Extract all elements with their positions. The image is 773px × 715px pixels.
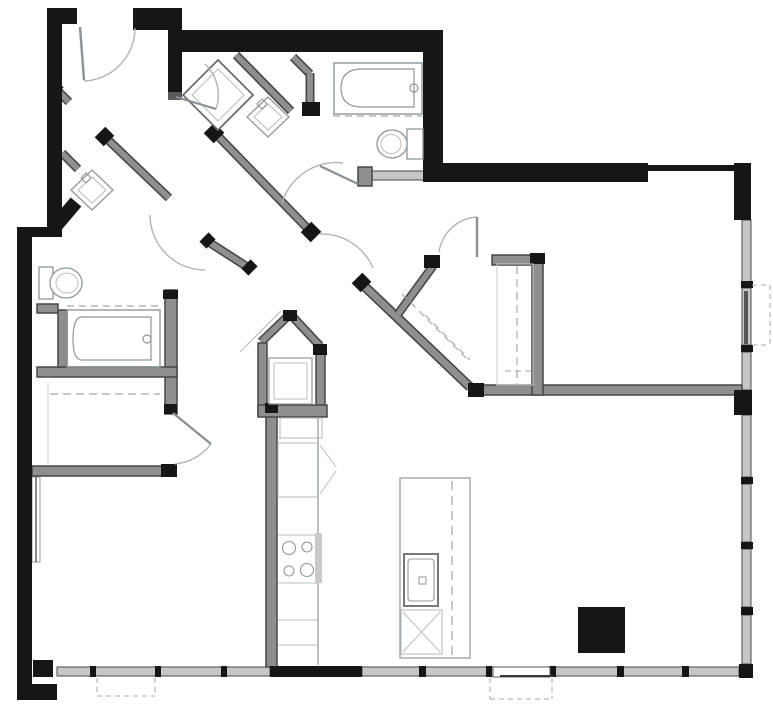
wall-cap-pantry-peak: [283, 310, 297, 321]
mullion-bottom-3: [221, 666, 227, 677]
island-sink-drain: [419, 577, 426, 584]
wall-band-bottom-left: [57, 667, 270, 676]
cooktop-burner-4: [301, 564, 314, 577]
window-right-3: [742, 352, 751, 390]
wall-cap-vanity: [302, 102, 320, 116]
interior-wall-corridor-long-core: [216, 134, 313, 234]
mullion-right-3: [741, 477, 753, 484]
interior-wall-closet1-west: [532, 255, 543, 395]
wall-cap-living-corner: [468, 383, 484, 397]
exterior-wall-left-upper: [47, 8, 62, 237]
wall-cap-living-diag-top: [357, 278, 366, 287]
door-arc-bed1: [439, 217, 477, 252]
pantry-inner-shaft: [269, 358, 312, 404]
mullion-bottom-1: [90, 666, 96, 677]
pantry-wall-east: [316, 348, 325, 411]
kitchen-cabinet-upper: [280, 418, 322, 438]
door-arc-closet2: [175, 444, 211, 464]
bathtub-bath2-basin: [73, 317, 151, 360]
column-living-room: [578, 607, 625, 653]
window-head-bed1: [648, 165, 736, 171]
door-leaf-closet2: [173, 413, 211, 444]
exterior-wall-bed1-north: [435, 163, 648, 182]
island-sink-inner: [408, 559, 434, 601]
mullion-right-1: [741, 281, 753, 288]
wall-cap-corridor-bottom: [306, 227, 316, 237]
door-leaf-entry: [80, 27, 84, 80]
door-arc-bath2: [150, 215, 205, 270]
kitchen-fridge-door-2: [320, 471, 336, 494]
mullion-right-4: [741, 542, 753, 549]
toilet-main-tank: [407, 129, 423, 159]
wall-cap-bath2-diag: [100, 132, 109, 141]
interior-wall-bed2-divider: [165, 290, 177, 414]
door-leaf-bath-main: [320, 166, 358, 184]
door-arc-bath-main: [282, 163, 343, 203]
bathtub-bath2-faucet: [143, 335, 151, 343]
wall-cap-bed1-door: [424, 255, 440, 268]
wall-cap-divider-top: [163, 290, 178, 299]
mullion-bottom-5: [486, 666, 492, 677]
mullion-bottom-8: [682, 666, 689, 677]
exterior-wall-top: [170, 30, 443, 52]
wall-cap-pantry-right: [313, 344, 327, 355]
interior-wall-bed1-south: [470, 385, 742, 395]
window-sash-right: [744, 291, 748, 344]
wall-cap-door-stub-1: [204, 237, 211, 244]
interior-wall-bath2-door-stub-core: [207, 241, 249, 268]
exterior-wall-upper-right-vert: [423, 30, 443, 182]
interior-wall-toilet-nook: [37, 304, 58, 313]
wall-cap-stub-a: [52, 85, 59, 92]
floor-plan-svg: [0, 0, 773, 715]
bathtub-bath2-outline: [67, 310, 160, 367]
window-right-4: [742, 415, 751, 477]
mullion-right-5: [741, 607, 753, 615]
floor-plan: [0, 0, 773, 715]
exterior-corner-se: [739, 664, 753, 678]
interior-wall-living-diag-core: [361, 283, 470, 387]
wall-cap-closet2: [161, 464, 177, 477]
kitchen-island-outline: [400, 478, 470, 658]
interior-wall-bath2-south: [37, 367, 177, 377]
interior-wall-bath2-diag-core: [104, 136, 169, 198]
exterior-wall-left-lower: [17, 227, 32, 700]
bathtub-main-outline: [334, 63, 422, 114]
window-right-7: [742, 615, 751, 664]
cooktop-burner-3: [284, 566, 294, 576]
wall-cap-bed2-jamb: [164, 404, 177, 414]
exterior-corner-sw-a: [33, 660, 53, 677]
mullion-bottom-7: [617, 666, 624, 677]
interior-wall-kitchen-west: [266, 411, 277, 667]
exterior-wall-bottom-solid: [270, 666, 362, 677]
cooktop-burner-1: [283, 542, 296, 555]
mullion-bottom-4: [419, 666, 426, 677]
bathtub-main-basin: [341, 69, 414, 107]
window-right-6: [742, 549, 751, 607]
cooktop-burner-2: [302, 542, 312, 552]
interior-wall-closet2-south: [32, 466, 163, 476]
exterior-wall-entry-left: [47, 8, 77, 24]
kitchen-fridge-door-1: [320, 445, 336, 467]
interior-wall-tub-stub: [58, 310, 67, 367]
island-sink-outer: [404, 554, 438, 606]
door-arc-living: [320, 234, 373, 268]
window-right-5: [742, 484, 751, 542]
mullion-right-2: [741, 345, 753, 352]
mullion-bottom-2: [155, 666, 161, 677]
kitchen-oven-band: [315, 533, 322, 583]
toilet-bath2-bowl: [50, 268, 82, 298]
kitchen-fridge: [278, 443, 318, 497]
exterior-pillar-ne: [734, 163, 751, 220]
window-right-1: [742, 220, 751, 282]
door-jamb-bath-main: [358, 167, 372, 186]
exterior-corner-right-mid: [734, 390, 752, 415]
door-arc-entry: [84, 28, 135, 81]
exterior-wall-entry-right: [133, 8, 182, 30]
wall-cap-door-stub-2: [246, 264, 253, 271]
wall-cap-closet1: [530, 253, 545, 264]
closet1-interior: [497, 264, 533, 385]
